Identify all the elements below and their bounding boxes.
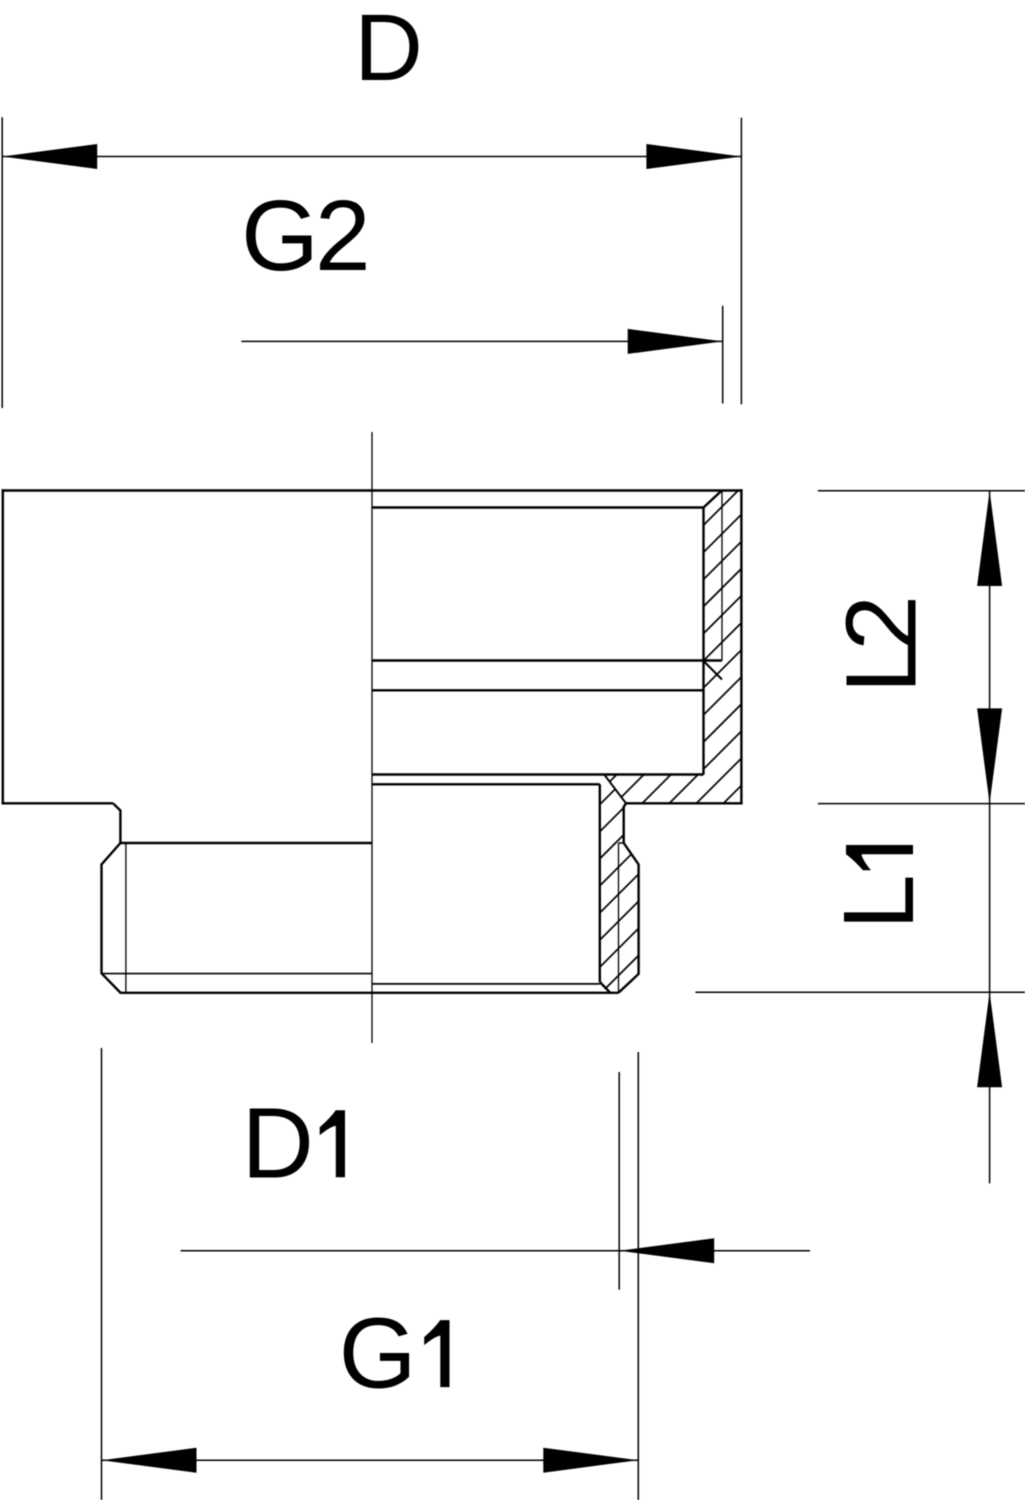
svg-text:2: 2 bbox=[825, 595, 937, 651]
svg-text:2: 2 bbox=[315, 180, 371, 292]
svg-text:G: G bbox=[241, 180, 319, 292]
svg-text:L: L bbox=[823, 874, 935, 930]
svg-text:G: G bbox=[339, 1297, 417, 1409]
svg-text:D: D bbox=[354, 0, 423, 101]
svg-text:D: D bbox=[242, 1088, 314, 1200]
